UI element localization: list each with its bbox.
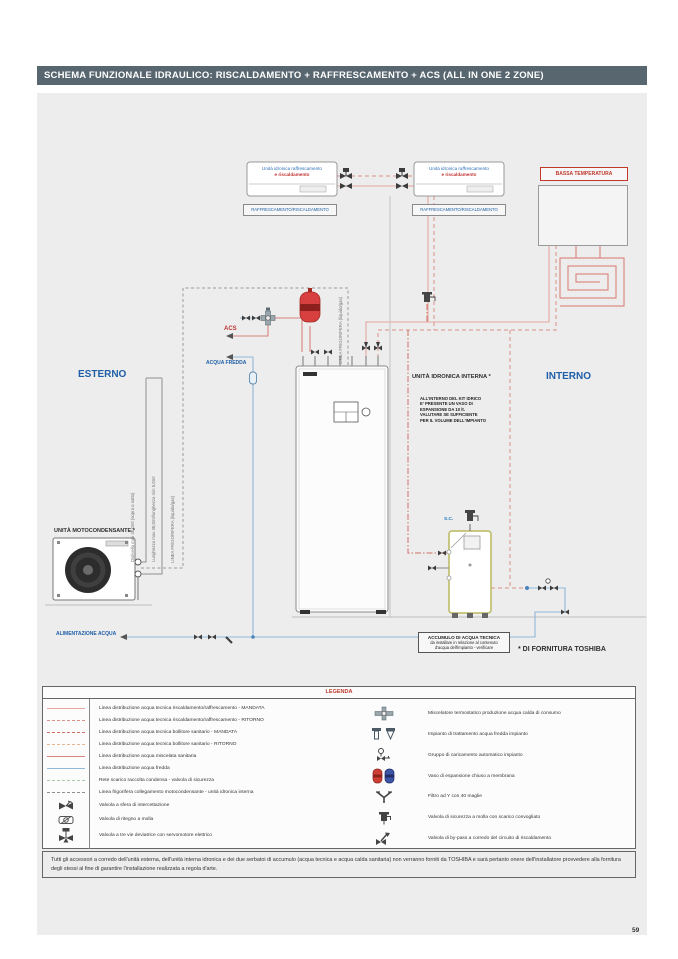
acs-label: ACS <box>224 326 237 332</box>
legend-symbol-row: Impianto di trattamento acqua fredda imp… <box>340 724 635 745</box>
three-way-valve-icon <box>56 828 76 843</box>
zone-label-esterno: ESTERNO <box>78 369 126 380</box>
legend-title: LEGENDA <box>43 687 635 699</box>
safety-valve-icon <box>376 810 392 825</box>
fancoil-1-mode-label: RAFFRESCAMENTO/RISCALDAMENTO <box>243 204 337 216</box>
junction-dot-2 <box>525 586 529 590</box>
line-sample-frigorifera <box>47 792 85 793</box>
acs-arrow <box>226 333 233 339</box>
fancoil-valve-cluster-2 <box>396 168 408 189</box>
line-sample-condensa <box>47 780 85 781</box>
cold-water-line <box>230 357 253 637</box>
legend-symbol-row: Valvola a tre vie deviatrice con servomo… <box>43 826 340 845</box>
manifold-box <box>538 185 628 246</box>
fancoil-1-label: Unità idronica raffrescamento e riscalda… <box>249 166 335 178</box>
legend-symbol-row: Valvola a sfera di intercettazione <box>43 799 340 813</box>
tank-safety-valve <box>465 510 478 531</box>
legend-right-column: Miscelatore termostatico produzione acqu… <box>340 699 635 849</box>
legend-symbol-row: Valvola di by-pass a corredo del circuit… <box>340 828 635 849</box>
water-treatment-icon <box>371 727 397 741</box>
bassa-temperatura-label: BASSA TEMPERATURA <box>540 167 628 181</box>
legend-symbol-row: Vaso di espansione chiuso a membrana <box>340 766 635 787</box>
lunghezza-label: Lunghezza max 30,0mt/lunghezza min 5,0mt <box>151 440 156 562</box>
legend-line-row: Linea distribuzione acqua tecnica riscal… <box>43 714 340 726</box>
footer-note: Tutti gli accessori a corredo dell'unità… <box>42 851 636 878</box>
line-sample-ritorno <box>47 720 85 721</box>
accumulo-note-box: ACCUMULO DI ACQUA TECNICA da installare … <box>418 632 510 653</box>
fancoil-2-mode-label: RAFFRESCAMENTO/RISCALDAMENTO <box>412 204 506 216</box>
bollitore-lines <box>408 304 449 553</box>
page-number: 59 <box>632 927 639 934</box>
buffer-tank <box>447 531 491 618</box>
bypass-valve-icon <box>375 831 393 846</box>
legend-line-row: Linea distribuzione acqua tecnica bollit… <box>43 726 340 738</box>
supply-line-valves <box>194 635 232 644</box>
expansion-vessel <box>300 288 320 322</box>
water-supply-arrow <box>120 634 127 640</box>
legend: LEGENDA Linea distribuzione acqua tecnic… <box>42 686 636 849</box>
indoor-unit-label: UNITÀ IDRONICA INTERNA * <box>412 374 491 380</box>
line-sample-mandata <box>47 708 85 709</box>
legend-line-row: Linea distribuzione acqua fredda <box>43 762 340 774</box>
sc-label: S.C. <box>444 517 453 522</box>
circuit-safety-valve <box>422 292 435 302</box>
auto-filling-group-icon <box>374 748 394 762</box>
legend-symbol-row: Filtro ad Y con 40 maglie <box>340 786 635 807</box>
cold-water-label: ACQUA FREDDA <box>206 360 246 366</box>
thermostatic-mixer-icon <box>374 706 394 721</box>
floor-heating-coil <box>560 244 624 306</box>
cold-water-filter <box>250 372 257 384</box>
refrigerant-line-label-2: LINEA FRIGORIFERA (liquido/gas) <box>338 292 343 364</box>
water-supply-label: ALIMENTAZIONE ACQUA <box>56 631 116 637</box>
fancoil-2-label: Unità idronica raffrescamento e riscalda… <box>416 166 502 178</box>
line-sample-miscelata <box>47 756 85 757</box>
legend-line-row: Rete scarico raccolta condensa - valvola… <box>43 775 340 787</box>
dislivello-label: Dislivello max 30,0mt (sopra o sotto) <box>130 432 135 562</box>
legend-symbol-row: Valvola di sicurezza a molla con scarico… <box>340 807 635 828</box>
y-filter-icon <box>375 790 393 804</box>
legend-symbol-row: Valvola di ritegno a molla <box>43 813 340 826</box>
ball-valve-icon <box>57 800 75 812</box>
thermostatic-mixer <box>261 308 275 326</box>
legend-symbol-row: Gruppo di caricamento automatico impiant… <box>340 745 635 766</box>
legend-left-column: Linea distribuzione acqua tecnica riscal… <box>43 699 340 849</box>
legend-line-row: Linea frigorifera collegamento motoconde… <box>43 787 340 799</box>
expansion-vessel-icon <box>372 768 396 784</box>
legend-line-row: Linea distribuzione acqua miscelata sani… <box>43 750 340 762</box>
junction-dot-1 <box>251 635 255 639</box>
line-sample-bollitore-ritorno <box>47 744 85 745</box>
outdoor-unit-label: UNITÀ MOTOCONDENSANTE * <box>54 528 135 534</box>
legend-line-row: Linea distribuzione acqua tecnica riscal… <box>43 702 340 714</box>
outdoor-unit <box>53 538 141 600</box>
toshiba-supply-note: * DI FORNITURA TOSHIBA <box>518 646 606 653</box>
manual-page: SCHEMA FUNZIONALE IDRAULICO: RISCALDAMEN… <box>0 0 678 959</box>
line-sample-bollitore-mandata <box>47 732 85 733</box>
legend-symbol-row: Miscelatore termostatico produzione acqu… <box>340 703 635 724</box>
filling-group <box>538 579 569 615</box>
check-valve-icon <box>57 814 75 825</box>
refrigerant-line-label-1: LINEA FRIGORIFERA (liquido/gas) <box>170 448 175 563</box>
kit-note: ALL'INTERNO DEL KIT IDRICO E' PRESENTE U… <box>420 396 486 423</box>
legend-line-row: Linea distribuzione acqua tecnica bollit… <box>43 738 340 750</box>
line-sample-acqua-fredda <box>47 768 85 769</box>
indoor-unit-valves <box>311 342 382 355</box>
indoor-unit <box>296 356 388 614</box>
zone-label-interno: INTERNO <box>546 371 591 382</box>
